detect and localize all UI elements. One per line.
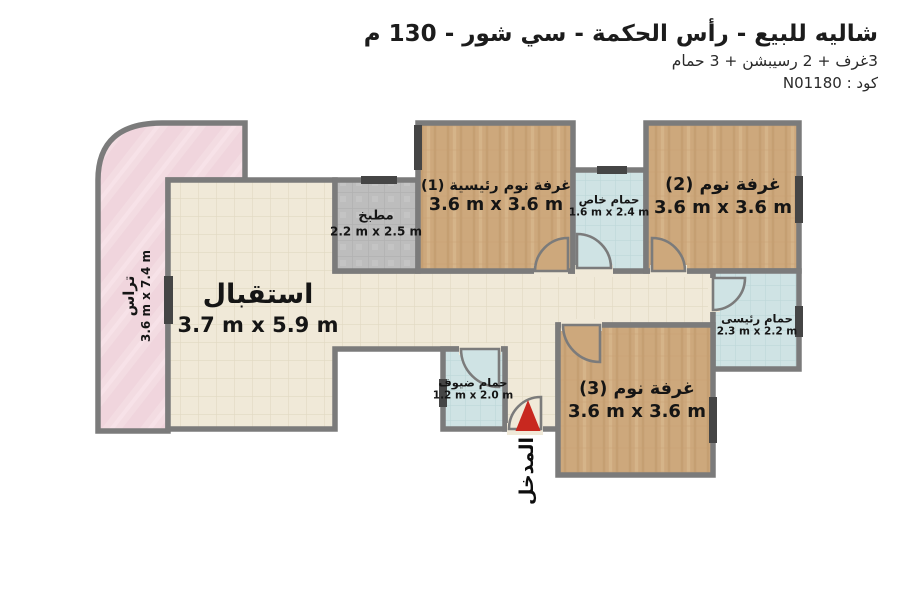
room-label-guest-bathroom: حمام ضيوف 1.2 m x 2.0 m (433, 375, 513, 403)
bedroom3-window (709, 397, 717, 443)
room-label-kitchen: مطبخ 2.2 m x 2.5 m (330, 208, 422, 239)
room-label-bedroom3: غرفة نوم (3) 3.6 m x 3.6 m (568, 379, 706, 423)
room-label-private-bathroom: حمام خاص 1.6 m x 2.4 m (569, 192, 649, 220)
bedroom2-window (795, 176, 803, 223)
room-label-bedroom2: غرفة نوم (2) 3.6 m x 3.6 m (654, 175, 792, 219)
terrace-door-bar (164, 276, 173, 324)
room-label-reception: استقبال 3.7 m x 5.9 m (178, 278, 339, 338)
bedroom1-window (414, 125, 422, 170)
floor-plan-page: شاليه للبيع - رأس الحكمة - سي شور - 130 … (0, 0, 900, 599)
room-label-terrace: تراس 3.6 m x 7.4 m (120, 250, 154, 342)
entrance-label: المدخل (516, 437, 540, 505)
room-label-bedroom1: غرفة نوم رئيسية (1) 3.6 m x 3.6 m (421, 177, 571, 217)
kitchen-window (361, 176, 397, 184)
room-label-main-bathroom: حمام رئيسى 2.3 m x 2.2 m (717, 311, 797, 339)
private-bathroom-window (597, 166, 627, 174)
